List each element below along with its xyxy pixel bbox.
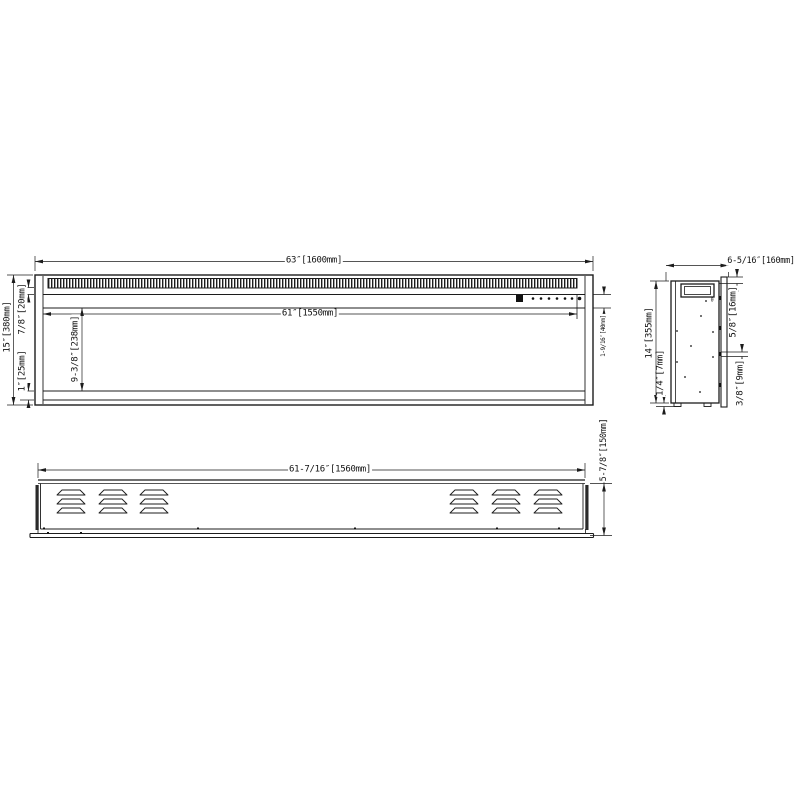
- dim-label-front-overall-width: 63″[1600mm]: [285, 257, 343, 266]
- control-button-dot: [532, 297, 535, 300]
- screw-dot: [676, 361, 678, 363]
- louver: [99, 499, 127, 504]
- control-button-dot: [540, 297, 543, 300]
- side-front-flange: [721, 277, 727, 407]
- control-button-dot: [556, 297, 559, 300]
- front-view: [35, 275, 593, 405]
- louver: [492, 499, 520, 504]
- bottom-screw-ticks: [43, 528, 560, 534]
- mounting-tab: [719, 352, 721, 356]
- louver: [534, 490, 562, 495]
- dim-label-side-flange-offset: 5/8″[16mm]: [730, 285, 739, 338]
- bottom-flange-strip: [30, 534, 594, 538]
- technical-drawing-canvas: 63″[1600mm] 61″[1550mm] 15″[380mm] 7/8″[…: [0, 0, 800, 800]
- louver: [450, 508, 478, 513]
- dim-label-front-opening-height: 9-3/8″[238mm]: [72, 315, 81, 384]
- louver: [492, 508, 520, 513]
- screw-tick: [354, 528, 356, 530]
- screw-dot: [676, 330, 678, 332]
- louver-vents-right: [450, 490, 562, 513]
- control-button-dot: [548, 297, 551, 300]
- bottom-flange-connectors: [38, 529, 586, 534]
- dim-label-side-foot-gap: 1/4″[7mm]: [657, 349, 666, 397]
- mounting-tab: [719, 326, 721, 330]
- louver: [140, 508, 168, 513]
- control-button-dot-large: [578, 297, 582, 301]
- dim-ext-line: [722, 352, 749, 357]
- louver: [57, 490, 85, 495]
- front-grille-band: [48, 279, 577, 289]
- dim-ext-line: [593, 295, 611, 309]
- dim-label-front-bottom-frame: 1″[25mm]: [19, 350, 28, 393]
- louver: [99, 508, 127, 513]
- screw-dot: [712, 356, 714, 358]
- control-display-square: [516, 295, 523, 302]
- louver-vents-left: [57, 490, 168, 513]
- screw-tick: [80, 532, 82, 534]
- control-button-dot: [571, 297, 574, 300]
- dim-label-front-opening-width: 61″[1550mm]: [281, 310, 339, 319]
- bottom-view: [30, 480, 594, 538]
- dim-label-side-height: 14″[355mm]: [646, 306, 655, 359]
- louver: [57, 499, 85, 504]
- control-panel: [516, 295, 581, 302]
- screw-dot: [712, 331, 714, 333]
- control-button-dot: [564, 297, 567, 300]
- louver: [140, 499, 168, 504]
- dim-label-front-top-frame: 7/8″[20mm]: [19, 282, 28, 335]
- screw-tick: [47, 532, 49, 534]
- screw-dot: [684, 376, 686, 378]
- side-vent-inner: [685, 287, 711, 295]
- louver: [450, 490, 478, 495]
- louver: [140, 490, 168, 495]
- louver: [99, 490, 127, 495]
- louver: [450, 499, 478, 504]
- drawing-lines-layer: [0, 0, 800, 800]
- screw-dot: [705, 300, 707, 302]
- dim-label-front-overall-height: 15″[380mm]: [4, 300, 13, 353]
- bottom-dimensions: [38, 440, 612, 536]
- side-view: [671, 277, 727, 407]
- side-zero-mark: 0: [711, 299, 714, 304]
- screw-dot: [690, 345, 692, 347]
- side-vent-outer: [681, 284, 714, 297]
- dim-label-bottom-width: 61-7/16″[1560mm]: [288, 466, 372, 475]
- louver: [57, 508, 85, 513]
- dim-ext-line: [720, 277, 744, 284]
- dim-label-front-control-strip: 1-9/16″[40mm]: [601, 314, 607, 358]
- screw-tick: [197, 528, 199, 530]
- bottom-right-flange-bar: [585, 485, 588, 530]
- side-screw-dots: [676, 300, 714, 393]
- screw-dot: [699, 391, 701, 393]
- dim-label-side-tab: 3/8″[9mm]: [737, 359, 746, 407]
- dim-label-side-depth: 6-5/16″[160mm]: [726, 257, 795, 266]
- dim-label-bottom-depth: 5-7/8″[150mm]: [600, 418, 609, 483]
- louver: [534, 508, 562, 513]
- louver: [534, 499, 562, 504]
- mounting-tab: [719, 296, 721, 300]
- screw-tick: [496, 528, 498, 530]
- dim-ext-line: [590, 484, 612, 536]
- screw-tick: [558, 528, 560, 530]
- bottom-left-flange-bar: [36, 485, 39, 530]
- dim-ext-line: [666, 272, 729, 281]
- louver: [492, 490, 520, 495]
- screw-dot: [700, 315, 702, 317]
- screw-tick: [43, 528, 45, 530]
- mounting-tab: [719, 383, 721, 387]
